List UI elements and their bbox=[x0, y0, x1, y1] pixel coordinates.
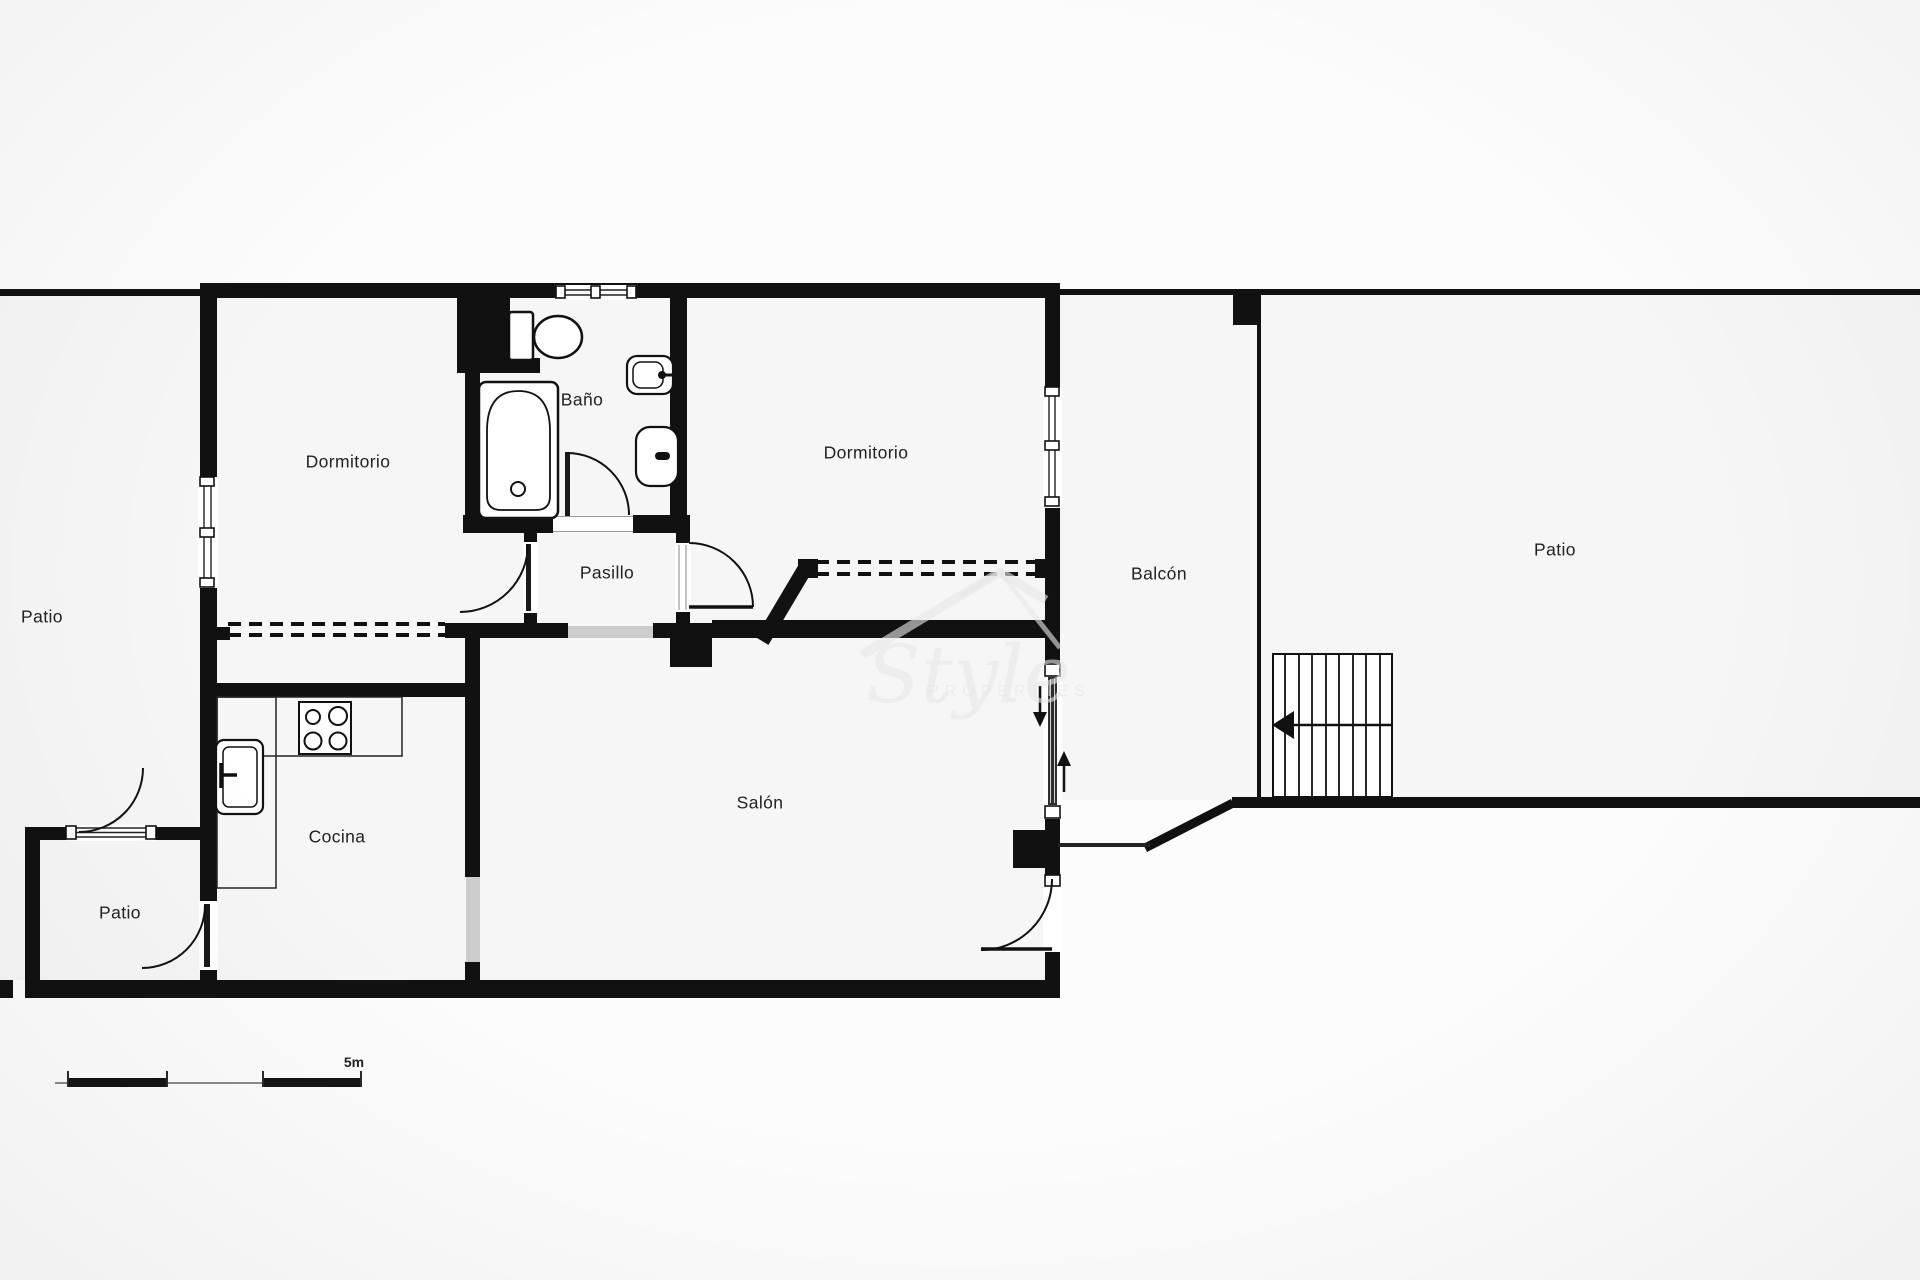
wall-balcon-patio-divider bbox=[1257, 323, 1261, 802]
room-label-cocina: Cocina bbox=[309, 827, 366, 848]
wall-segment bbox=[712, 620, 1045, 638]
opening-cocina-salon bbox=[466, 877, 480, 962]
scale-bar-tick bbox=[166, 1071, 168, 1087]
room-label-pasillo: Pasillo bbox=[580, 563, 634, 584]
room-label-salon: Salón bbox=[737, 793, 784, 814]
wall-pillar bbox=[1013, 830, 1058, 868]
floor-plan: Patio Dormitorio Baño Dormitorio Pasillo… bbox=[0, 0, 1920, 1280]
room-label-dormitorio2: Dormitorio bbox=[824, 443, 909, 464]
scale-bar-tick bbox=[360, 1071, 362, 1087]
opening-bano-pasillo bbox=[553, 516, 633, 532]
wall-diagonal-balcon bbox=[1145, 803, 1233, 848]
wall-segment bbox=[1045, 950, 1060, 993]
wall-segment bbox=[465, 962, 480, 983]
wall-segment bbox=[1232, 797, 1920, 808]
room-label-patio-right: Patio bbox=[1534, 540, 1576, 561]
wall-segment bbox=[524, 533, 537, 543]
wall-segment bbox=[200, 283, 217, 478]
scale-bar-tick bbox=[67, 1071, 69, 1087]
floor-balcon-patio bbox=[1060, 295, 1920, 800]
wall-segment bbox=[0, 980, 1060, 998]
wall-segment bbox=[1060, 289, 1920, 295]
wall-segment bbox=[676, 610, 690, 623]
wall-segment bbox=[524, 612, 537, 623]
wall-segment bbox=[0, 289, 202, 296]
wall-segment bbox=[465, 637, 480, 877]
wall-segment bbox=[676, 533, 690, 545]
scale-bar-segment bbox=[67, 1078, 167, 1087]
wall-segment bbox=[463, 515, 553, 533]
wall-segment bbox=[670, 637, 712, 667]
room-label-patio-left: Patio bbox=[21, 607, 63, 628]
wall-segment bbox=[653, 623, 712, 638]
wall-segment bbox=[670, 287, 687, 533]
wall-gap bbox=[13, 980, 25, 998]
wall-wardrobe-back bbox=[213, 683, 465, 697]
scale-bar-label: 5m bbox=[344, 1054, 364, 1070]
opening-pasillo-salon bbox=[568, 626, 653, 638]
scale-bar-tick bbox=[262, 1071, 264, 1087]
wall-segment bbox=[202, 283, 1060, 298]
wall-pillar bbox=[1233, 293, 1261, 325]
wall-segment bbox=[798, 559, 818, 578]
wall-segment bbox=[25, 827, 40, 983]
wall-segment bbox=[1045, 298, 1060, 388]
wall-segment bbox=[465, 372, 480, 533]
room-label-bano: Baño bbox=[561, 390, 603, 411]
room-label-balcon: Balcón bbox=[1131, 564, 1187, 585]
room-label-patio-small: Patio bbox=[99, 903, 141, 924]
wall-segment bbox=[213, 627, 230, 640]
scale-bar-segment bbox=[262, 1078, 362, 1087]
room-label-dormitorio1: Dormitorio bbox=[306, 452, 391, 473]
wall-segment bbox=[40, 827, 202, 840]
wall-segment bbox=[445, 623, 568, 638]
wall-segment bbox=[457, 358, 540, 373]
wall-segment bbox=[1045, 507, 1060, 666]
stairs-icon bbox=[1272, 653, 1393, 798]
